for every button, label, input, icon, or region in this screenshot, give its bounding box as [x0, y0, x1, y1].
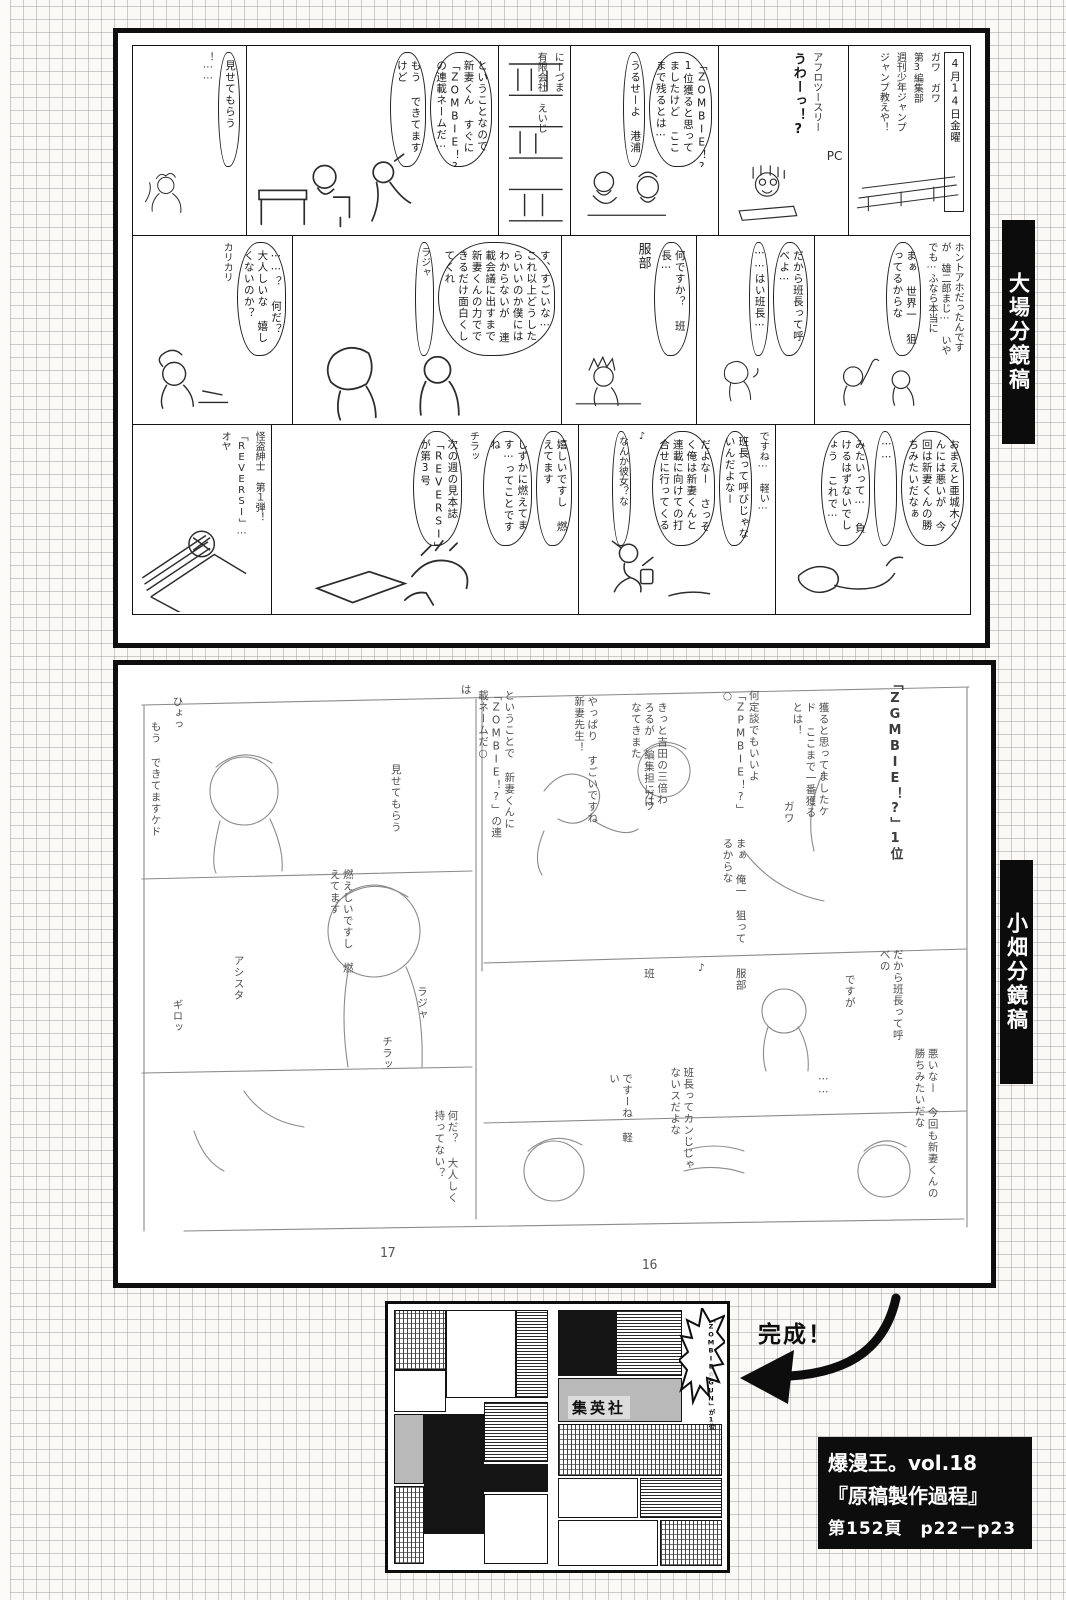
- sketch-note: もう できてますケド: [149, 721, 162, 838]
- kansei-arrow-icon: [728, 1292, 903, 1404]
- scanned-book-page: 見せてもらう ！⋯⋯ ということなので 新妻くん すぐに「ZOMBIE！?」の連…: [0, 0, 1066, 1600]
- pointing-figure-doodle-icon: [818, 339, 930, 422]
- mini-panel: [558, 1520, 658, 1566]
- sketch-note: 「ZGMBIE！?」1位: [886, 677, 902, 861]
- sketch-note: ガワ: [642, 789, 655, 812]
- burst-icon: [679, 1308, 725, 1416]
- burst-text: 「ZOMBIE☆GUN」が1位: [708, 1316, 715, 1430]
- storyboard-cell: おまえと亜城木くんには悪いが 今回は新妻くんの勝ちみたいだなぁ ⋯⋯ みたいって…: [776, 425, 970, 614]
- pencil-sketch-icon: [124, 671, 989, 1281]
- figure-doodle-icon: [574, 150, 679, 233]
- storyboard-cell: 「ZOMBIE！?」1位獲ると思ってましたけど ここまで残るとは⋯ うるせーよ …: [571, 46, 718, 235]
- mini-panel: [558, 1424, 722, 1476]
- sketch-note: やっぱり すごいですね 新妻先生！: [572, 696, 598, 826]
- storyboard-cell: ⋯⋯？ 何だ？ 大人しいな 嬉しくないのか？ カリカリ: [133, 236, 293, 425]
- mini-panel: [394, 1486, 424, 1564]
- sketch-note: ひょっ: [170, 696, 183, 731]
- figure-doodle-icon: [136, 339, 250, 422]
- two-figures-doodle-icon: [296, 339, 489, 422]
- mini-panel: [616, 1310, 682, 1376]
- bookshelf-doodle-icon: [502, 55, 570, 234]
- obata-storyboard-panel: ひょっ もう できてますケド 見せてもらう ということで 新妻くんに「ZOMBI…: [113, 660, 996, 1288]
- desk-doodle-icon: [250, 150, 431, 233]
- figure-doodle-icon: [700, 339, 784, 422]
- caption-subtitle: 『原稿製作過程』: [828, 1480, 1024, 1509]
- building-doodle-icon: [852, 150, 967, 233]
- sketch-note: ♪: [694, 962, 707, 975]
- storyboard-cell: 何ですか？ 班長⋯ 服部: [562, 236, 697, 425]
- sketch-note: ですーね 軽い: [607, 1073, 633, 1148]
- speech-text: 見せてもらう: [218, 52, 240, 167]
- mini-panel: [484, 1464, 548, 1492]
- mini-panel: [446, 1310, 516, 1398]
- sketch-note: 獲ると思ってましたケド ここまで一番獲るとは！: [790, 702, 829, 822]
- ohba-storyboard-panel: 見せてもらう ！⋯⋯ ということなので 新妻くん すぐに「ZOMBIE！?」の連…: [113, 28, 990, 648]
- reclining-figure-doodle-icon: [779, 529, 918, 612]
- mini-panel: [660, 1520, 722, 1566]
- mini-panel: [484, 1402, 548, 1462]
- obata-storyboard-label: 小畑分鏡稿: [1000, 860, 1033, 1084]
- sketch-note: ガワ: [781, 801, 794, 824]
- sketch-note: は: [458, 684, 471, 696]
- storyboard-grid: 見せてもらう ！⋯⋯ ということなので 新妻くん すぐに「ZOMBIE！?」の連…: [132, 45, 971, 615]
- sketch-note: だから班長って呼べの: [878, 949, 904, 1044]
- sketch-note: ということで 新妻くんに「ZOMBIE！?」の連載ネームだ○: [476, 690, 515, 840]
- storyboard-cell: だから班長って呼べよ⋯ ⋯⋯はい班長⋯: [697, 236, 815, 425]
- writing-figure-doodle-icon: [275, 529, 535, 612]
- sketch-note: 何だ？ 大人しく 持ってない？: [432, 1110, 458, 1225]
- storyboard-row: ⋯⋯？ 何だ？ 大人しいな 嬉しくないのか？ カリカリ す、すごいな⋯ これ以上…: [133, 236, 970, 426]
- sketch-note: 班: [642, 968, 655, 980]
- speech-text: 班長って呼びじゃないんだよなー: [719, 431, 752, 546]
- mini-panel: [424, 1414, 484, 1534]
- mini-panel: [394, 1414, 424, 1484]
- running-figure-doodle-icon: [582, 529, 724, 612]
- storyboard-cell: 見せてもらう ！⋯⋯: [133, 46, 247, 235]
- sketch-note: ギロッ: [170, 999, 183, 1034]
- storyboard-row: 見せてもらう ！⋯⋯ ということなので 新妻くん すぐに「ZOMBIE！?」の連…: [133, 46, 970, 236]
- speech-text: ですね⋯ 軽い⋯: [756, 431, 769, 546]
- finished-page-thumbnail: 集英社 「ZOMBIE☆GUN」が1位: [385, 1301, 730, 1573]
- caption-box: 爆漫王。vol.18 『原稿製作過程』 第152頁 p22－p23: [818, 1437, 1032, 1549]
- sketch-note: アシスタ: [231, 955, 244, 1001]
- figure-doodle-icon: [136, 150, 217, 233]
- sketch-note: 見せてもらう: [389, 764, 402, 833]
- speech-text: 嬉しいですし 燃えてます: [536, 431, 571, 546]
- mini-panel: [394, 1370, 446, 1412]
- mini-panel: [394, 1310, 446, 1370]
- book-stack-doodle-icon: [136, 499, 263, 612]
- mini-panel: [516, 1310, 548, 1398]
- mini-panel: [558, 1310, 616, 1376]
- publisher-text: 集英社: [568, 1396, 630, 1419]
- storyboard-cell: ですね⋯ 軽い⋯ 班長って呼びじゃないんだよなー だよなー さっそく俺は新妻くん…: [579, 425, 777, 614]
- spiky-hair-figure-doodle-icon: [565, 339, 661, 422]
- storyboard-cell: ということなので 新妻くん すぐに「ZOMBIE！?」の連載ネームだ⋯ もう で…: [247, 46, 499, 235]
- sketch-note: 服部: [733, 968, 746, 991]
- storyboard-cell: 嬉しいですし 燃えてます しずかに燃えてます⋯ってことですね チラッ 次の週の見…: [272, 425, 579, 614]
- sketch-note: ラジャ: [415, 986, 428, 1021]
- page-left-margin: [0, 0, 10, 1600]
- storyboard-cell: ホントアホだったんですが 雄二郎まじ⋯ いやでも⋯ふなら本当に まぁ 世界一 狙…: [815, 236, 970, 425]
- shocked-figure-doodle-icon: [722, 150, 815, 233]
- sketch-note: ⋯⋯: [816, 1073, 829, 1099]
- page-number: 17: [380, 1246, 396, 1261]
- speech-text: ということなので 新妻くん すぐに「ZOMBIE！?」の連載ネームだ⋯: [430, 52, 493, 167]
- mini-panel: [484, 1494, 548, 1564]
- sketch-note: チラッ: [380, 1036, 393, 1071]
- caption-page-info: 第152頁 p22－p23: [828, 1514, 1024, 1539]
- caption-title: 爆漫王。vol.18: [828, 1447, 1024, 1476]
- storyboard-cell: にーづま 有限会社 えいじ: [499, 46, 571, 235]
- sketch-note: 燃えしいですし 燃えてます: [328, 869, 354, 974]
- storyboard-cell: PC アフロツースリー うわーっ！?: [719, 46, 850, 235]
- mini-panel: [640, 1478, 722, 1518]
- pc-label-text: PC: [827, 149, 843, 165]
- storyboard-row: 怪盗紳士 第１弾！ 「REVERSI」⋯ オヤ 嬉しいですし 燃えてます しずか…: [133, 425, 970, 614]
- storyboard-cell: す、すごいな⋯ これ以上どうしたらいいのか僕にはわからないが 連載会議に出すまで…: [293, 236, 562, 425]
- storyboard-cell: 怪盗紳士 第１弾！ 「REVERSI」⋯ オヤ: [133, 425, 272, 614]
- ohba-storyboard-label: 大場分鏡稿: [1002, 220, 1035, 444]
- speech-text: ホントアホだったんですが 雄二郎まじ⋯ いやでも⋯ふなら本当に: [925, 242, 964, 357]
- mini-panel: [558, 1478, 638, 1518]
- sketch-note: 班長ってカンじじゃ ないスだよな: [668, 1067, 694, 1177]
- storyboard-cell: 4月14日金曜 ガワ ガワ 第3編集部 週刊少年ジャンプ ジャンプ教えや！: [849, 46, 970, 235]
- sketch-note: まぁ 俺一 狙ってるからな: [720, 838, 746, 948]
- sketch-note: 悪いなー 今回も新妻くんの勝ちみたいだな: [912, 1048, 938, 1208]
- sketch-note: 何定談でもいいよ「ZPMBIE！?」○: [720, 690, 759, 820]
- sketch-note: ですが: [843, 974, 856, 1009]
- page-number: 16: [642, 1258, 658, 1273]
